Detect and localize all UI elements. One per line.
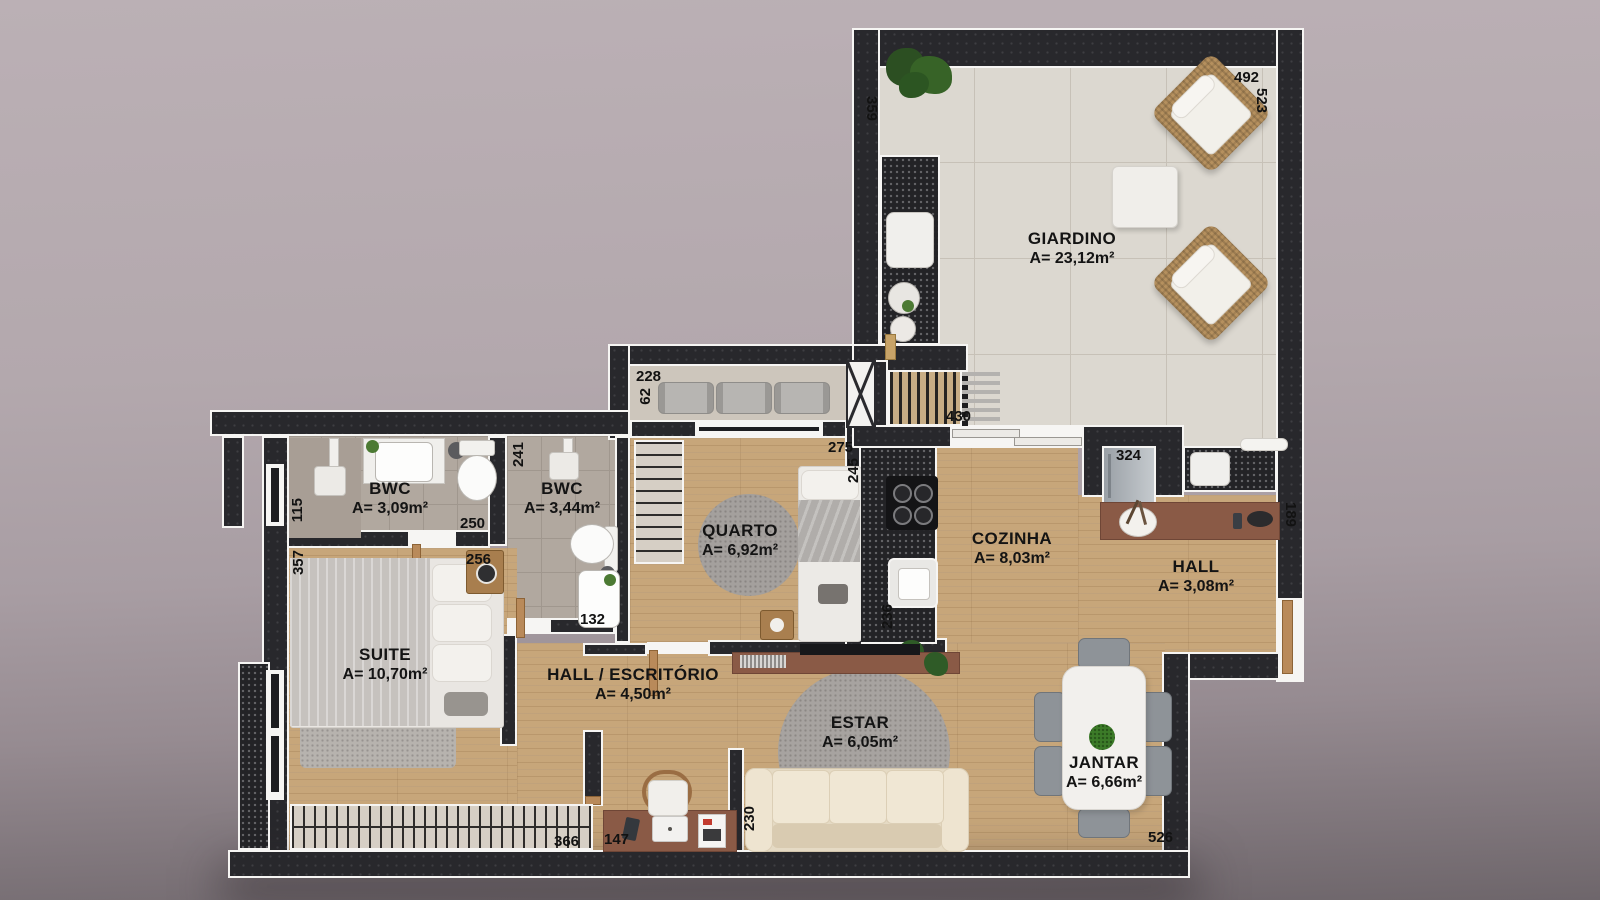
- kitchen-sink: [888, 558, 938, 608]
- shaft-x-brace: [846, 360, 876, 428]
- dim-275: 275: [828, 440, 853, 455]
- decor-bowl-icon: [1119, 507, 1157, 537]
- quarto-blanket: [798, 500, 860, 562]
- quarto-wardrobe: [634, 440, 684, 564]
- dim-236: 236: [880, 604, 895, 629]
- suite-wardrobe: [290, 804, 593, 850]
- floor-plan-scene: GIARDINO A= 23,12m² BWC A= 3,09m² BWC A=…: [0, 0, 1600, 900]
- dim-492: 492: [1234, 70, 1259, 85]
- sofa-cushion-2: [829, 770, 887, 824]
- suite-window-glass: [271, 674, 279, 728]
- room-label-giardino: GIARDINO A= 23,12m²: [1028, 228, 1116, 269]
- dining-chair-bottom: [1078, 808, 1130, 838]
- laptop-icon: [652, 816, 688, 842]
- sliding-door-panel-2: [1014, 437, 1082, 446]
- hall-sideboard: [1100, 502, 1280, 540]
- bwc1-sink: [375, 442, 433, 482]
- desk-chair-seat: [648, 780, 688, 816]
- suite-pillow-2: [432, 604, 492, 642]
- tray-icon: [1247, 511, 1273, 527]
- room-label-jantar: JANTAR A= 6,66m²: [1066, 752, 1142, 793]
- sofa-cushion-1: [772, 770, 830, 824]
- ac-unit-1: [658, 382, 714, 414]
- phone-icon: [1233, 513, 1242, 529]
- dim-189: 189: [1283, 502, 1298, 527]
- dim-241: 241: [511, 442, 526, 467]
- room-label-bwc1: BWC A= 3,09m²: [352, 478, 428, 519]
- dim-357: 357: [291, 550, 306, 575]
- dim-147: 147: [604, 832, 629, 847]
- bwc2-door-leaf: [516, 598, 525, 638]
- room-label-hall: HALL A= 3,08m²: [1158, 556, 1234, 597]
- bwc1-toilet-bowl: [457, 455, 497, 501]
- centerpiece-plant-icon: [1089, 724, 1115, 750]
- bwc1-plant-icon: [366, 440, 379, 453]
- room-label-bwc2: BWC A= 3,44m²: [524, 478, 600, 519]
- wall-suite-door: [583, 730, 603, 806]
- dim-324: 324: [1116, 448, 1141, 463]
- sliding-door-panel-1: [952, 429, 1020, 438]
- dim-228: 228: [636, 369, 661, 384]
- dim-132: 132: [580, 612, 605, 627]
- dim-366: 366: [554, 834, 579, 849]
- bwc1-window-glass: [271, 468, 279, 522]
- herb-icon: [902, 300, 914, 312]
- room-label-hall-escritorio: HALL / ESCRITÓRIO A= 4,50m²: [547, 664, 719, 705]
- bwc2-plant-icon: [604, 574, 616, 586]
- quarto-side-table: [760, 610, 794, 640]
- quarto-foot-cushion: [818, 584, 848, 604]
- suite-pillow-3: [432, 644, 492, 682]
- giardino-sink: [886, 212, 934, 268]
- room-label-quarto: QUARTO A= 6,92m²: [702, 520, 778, 561]
- bwc1-toilet-tank: [459, 440, 495, 456]
- dim-245: 245: [846, 458, 861, 483]
- ac-unit-3: [774, 382, 830, 414]
- estar-plant-icon: [924, 652, 948, 676]
- giardino-bbq-sink: [1190, 452, 1230, 486]
- dim-256: 256: [466, 552, 491, 567]
- shower-head-icon: [314, 466, 346, 496]
- dim-359: 359: [864, 96, 879, 121]
- cooktop: [886, 476, 938, 530]
- towel-roll-icon: [1240, 438, 1288, 451]
- room-label-cozinha: COZINHA A= 8,03m²: [972, 528, 1052, 569]
- dim-115: 115: [290, 498, 305, 522]
- bwc2-shower-head-icon: [549, 452, 579, 480]
- giardino-ottoman: [1112, 166, 1178, 228]
- dim-62: 62: [638, 388, 653, 405]
- wall-quarto-south-left: [583, 643, 647, 656]
- dim-250: 250: [460, 516, 485, 531]
- board-icon: [885, 334, 896, 360]
- dim-526: 526: [1148, 830, 1173, 845]
- sofa-cushion-3: [886, 770, 944, 824]
- wall-giardino-left: [852, 28, 880, 370]
- dim-430: 430: [946, 409, 971, 424]
- wall-leftwing-top: [210, 410, 630, 436]
- bwc2-toilet-bowl: [570, 524, 614, 564]
- room-label-suite: SUITE A= 10,70m²: [343, 644, 428, 685]
- wall-laundry-top: [608, 344, 858, 366]
- soundbar-icon: [740, 655, 786, 668]
- entry-door-leaf: [1282, 600, 1293, 674]
- magazine-icon: [698, 814, 726, 848]
- suite-blanket: [290, 558, 430, 726]
- tv-icon: [800, 644, 920, 655]
- dim-523: 523: [1254, 88, 1269, 113]
- sofa-armrest-right: [941, 768, 969, 852]
- suite-window-glass-2: [271, 736, 279, 792]
- dim-230: 230: [742, 806, 757, 831]
- wall-right: [1276, 28, 1304, 682]
- quarto-window-glass: [699, 427, 819, 431]
- wall-bottom: [228, 850, 1190, 878]
- sofa-backrest: [772, 824, 942, 848]
- suite-throw-pillow: [444, 692, 488, 716]
- ac-unit-2: [716, 382, 772, 414]
- wall-west-stub: [222, 436, 244, 528]
- room-label-estar: ESTAR A= 6,05m²: [822, 712, 898, 753]
